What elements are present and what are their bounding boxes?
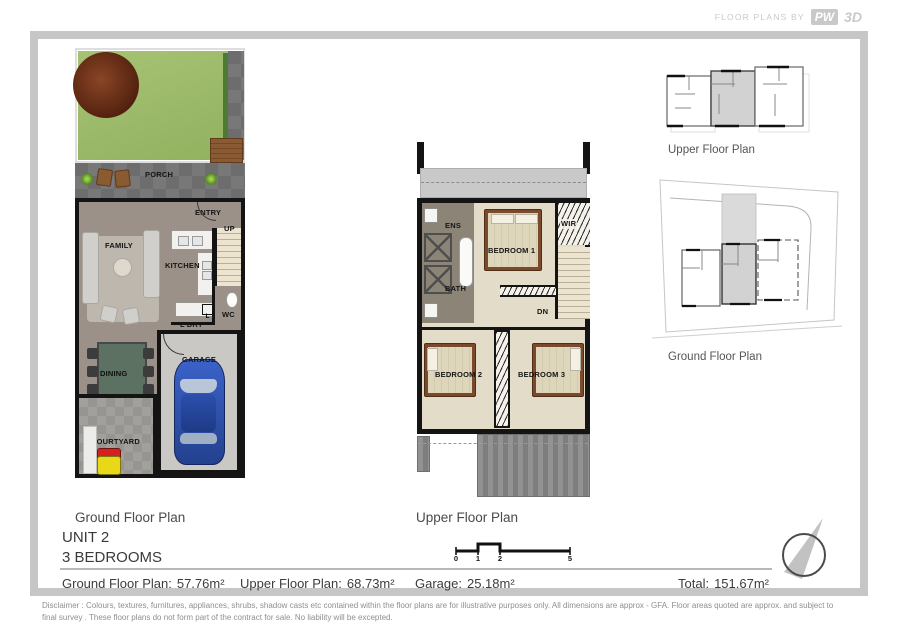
stat-value: 151.67m²	[714, 576, 769, 591]
laundry-machine-label: L	[206, 313, 210, 320]
pillow-icon	[570, 348, 581, 371]
stat-total: Total:151.67m²	[678, 576, 769, 591]
brand-prefix-text: FLOOR PLANS BY	[715, 12, 805, 22]
wall-segment	[212, 228, 215, 324]
cooktop-icon	[202, 261, 212, 270]
family-label: FAMILY	[105, 242, 133, 250]
pillow-icon	[515, 214, 538, 224]
roof-dashed-line	[421, 182, 586, 183]
upper-floor-plan: ENS BATH BEDROOM 1 WIR DN BEDROOM 2 BEDR…	[417, 142, 590, 499]
cooktop-icon	[202, 271, 212, 280]
bathtub-icon	[459, 237, 473, 287]
roof-strip-small	[417, 436, 430, 472]
courtyard-bench	[83, 426, 97, 474]
ground-floor-plan: PORCH FAMILY ENTRY UP KITCHEN	[75, 48, 245, 478]
wc-label: WC	[222, 311, 235, 319]
header-brand: FLOOR PLANS BY PW 3D	[715, 9, 862, 25]
sofa-icon	[143, 230, 160, 298]
unit-info: UNIT 2 3 BEDROOMS	[62, 528, 162, 567]
ens-label: ENS	[445, 222, 461, 230]
stat-label: Garage:	[415, 576, 462, 591]
pillow-icon	[491, 214, 514, 224]
stat-upper-floor: Upper Floor Plan:68.73m²	[240, 576, 395, 591]
disclaimer-line2: final survey . These floor plans do not …	[42, 612, 842, 624]
middle-robe	[494, 330, 510, 428]
garage-label: GARAGE	[182, 356, 216, 364]
kitchen-island	[171, 230, 215, 250]
bedroom1-label: BEDROOM 1	[488, 247, 535, 255]
ground-floor-locator-diagram	[638, 168, 866, 348]
pillow-icon	[427, 348, 438, 371]
sink-icon	[178, 236, 189, 246]
porch-label: PORCH	[145, 171, 173, 179]
stat-label: Total:	[678, 576, 709, 591]
plant-icon	[205, 173, 217, 185]
bedroom1-robe	[500, 285, 556, 297]
bath-label: BATH	[445, 285, 466, 293]
stairs-down	[558, 247, 590, 319]
garden-area	[75, 48, 245, 163]
pw3d-logo-icon: PW	[811, 9, 838, 25]
porch-area: PORCH	[75, 163, 245, 198]
porch-chair-icon	[114, 169, 131, 187]
dining-chair-icon	[87, 366, 98, 377]
sofa-icon	[82, 232, 99, 304]
garage-area	[157, 330, 241, 474]
kitchen-label: KITCHEN	[165, 262, 200, 270]
compass-north-icon	[776, 514, 848, 588]
balcony-roof-strip	[420, 168, 587, 198]
armchair-icon	[100, 305, 119, 324]
scale-tick-0: 0	[454, 554, 458, 562]
scale-bar: 0 1 2 5	[449, 536, 579, 562]
scale-tick-2: 2	[498, 554, 502, 562]
yellow-bin-icon	[97, 456, 121, 475]
timber-deck	[210, 138, 243, 163]
plant-icon	[81, 173, 93, 185]
tree-icon	[73, 52, 139, 118]
stat-value: 68.73m²	[347, 576, 395, 591]
car-rear-window	[180, 433, 217, 444]
stat-value: 25.18m²	[467, 576, 515, 591]
courtyard-label: COURTYARD	[91, 438, 140, 446]
coffee-table-icon	[113, 258, 132, 277]
roof-dashed-line	[418, 443, 588, 444]
stat-ground-floor: Ground Floor Plan:57.76m²	[62, 576, 225, 591]
armchair-icon	[122, 307, 141, 326]
dining-chair-icon	[143, 348, 154, 359]
dining-label: DINING	[100, 370, 127, 378]
up-label: UP	[224, 225, 235, 233]
car-roof	[181, 394, 216, 432]
ground-floor-plan-caption: Ground Floor Plan	[75, 510, 185, 525]
unit-name: UNIT 2	[62, 528, 162, 548]
dining-chair-icon	[143, 366, 154, 377]
unit-bedrooms: 3 BEDROOMS	[62, 548, 162, 568]
courtyard-area: COURTYARD	[79, 394, 157, 474]
garage-door-arc	[163, 334, 184, 355]
car-icon	[174, 359, 225, 465]
dining-chair-icon	[87, 348, 98, 359]
bedroom3-label: BEDROOM 3	[518, 371, 565, 379]
ground-floor-interior: FAMILY ENTRY UP KITCHEN L L'DRY WC	[75, 198, 245, 478]
stairs-up	[215, 228, 241, 286]
pw3d-logo-3d-text: 3D	[844, 9, 862, 25]
toilet-icon	[226, 292, 238, 308]
stat-label: Upper Floor Plan:	[240, 576, 342, 591]
upper-locator-caption: Upper Floor Plan	[668, 144, 755, 156]
stat-value: 57.76m²	[177, 576, 225, 591]
disclaimer-text: Disclaimer : Colours, textures, furnitur…	[42, 600, 842, 623]
basin-icon	[424, 303, 438, 318]
disclaimer-line1: Disclaimer : Colours, textures, furnitur…	[42, 600, 842, 612]
stat-label: Ground Floor Plan:	[62, 576, 172, 591]
porch-chair-icon	[96, 168, 113, 187]
car-windshield	[180, 379, 217, 393]
upper-floor-interior: ENS BATH BEDROOM 1 WIR DN BEDROOM 2 BEDR…	[417, 198, 590, 434]
roof-strip-large	[477, 434, 590, 497]
stat-garage: Garage:25.18m²	[415, 576, 515, 591]
wall-segment	[171, 322, 215, 325]
basin-icon	[424, 208, 438, 223]
bedroom2-label: BEDROOM 2	[435, 371, 482, 379]
scale-tick-5: 5	[568, 554, 572, 562]
wall-segment	[555, 203, 558, 319]
shower-icon	[424, 233, 452, 262]
upper-floor-plan-caption: Upper Floor Plan	[416, 510, 518, 525]
dn-label: DN	[537, 308, 548, 316]
wir-label: WIR	[560, 219, 577, 229]
bed-icon	[484, 209, 542, 271]
entry-door-arc	[197, 202, 216, 221]
scale-tick-1: 1	[476, 554, 480, 562]
footer-divider	[60, 568, 772, 570]
ground-locator-caption: Ground Floor Plan	[668, 351, 762, 363]
upper-floor-locator-diagram	[655, 64, 825, 138]
sink-icon	[192, 236, 203, 246]
